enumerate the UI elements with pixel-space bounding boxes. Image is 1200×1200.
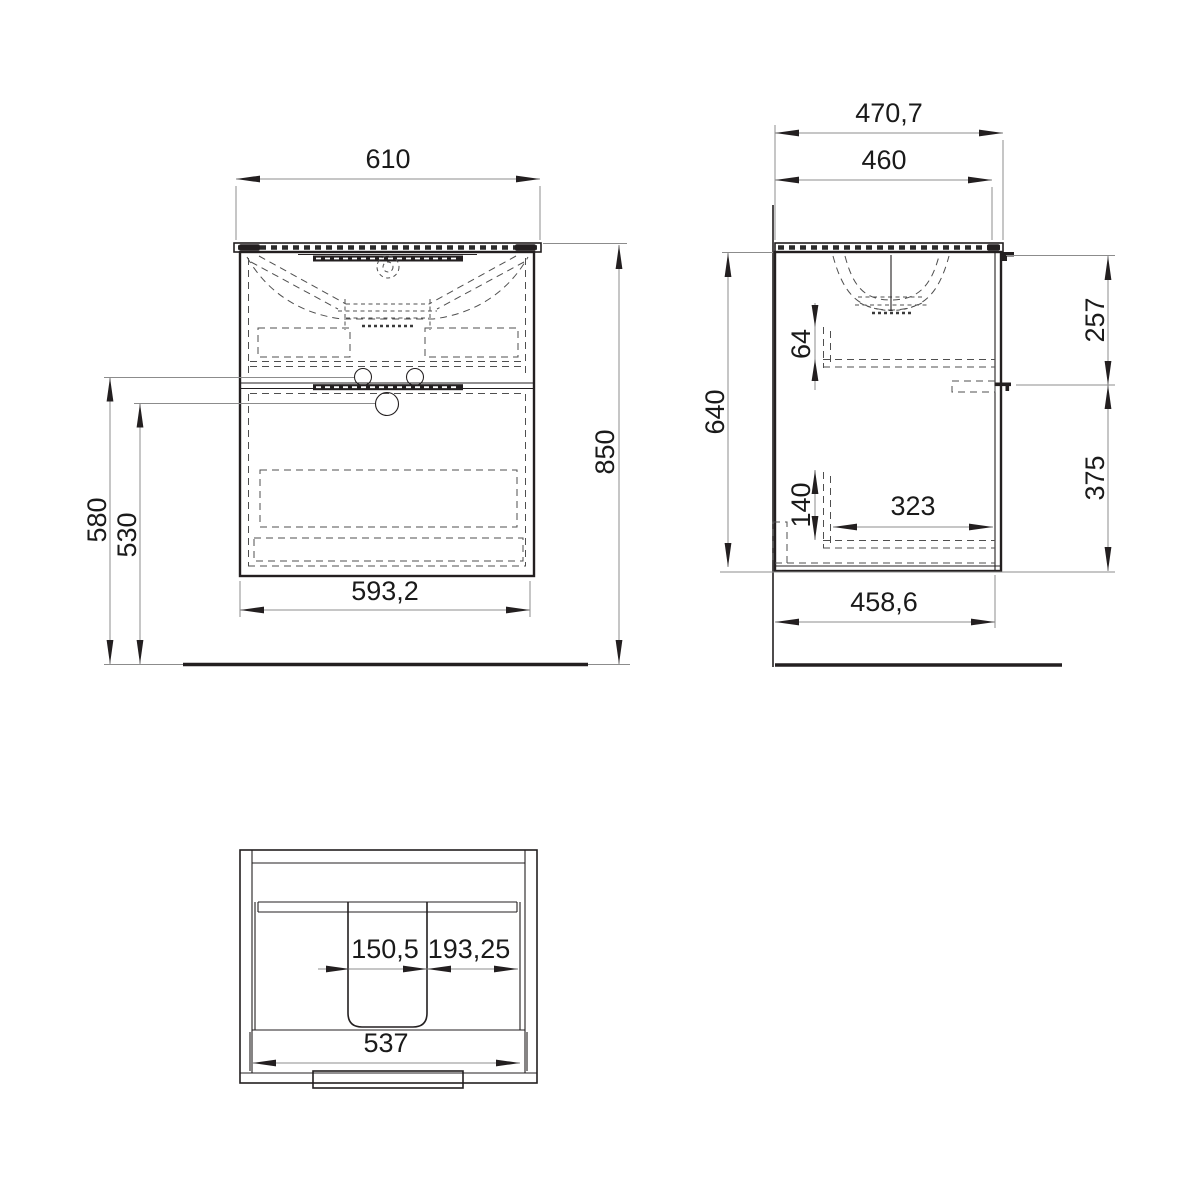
side-dim-bottom-depth: 458,6 (775, 575, 995, 628)
front-view: 610 (82, 144, 630, 665)
front-basin-hidden-lines (247, 256, 528, 330)
dim-label-593-2: 593,2 (351, 576, 419, 606)
side-upper-drawer-hidden (823, 327, 995, 392)
dim-label-640: 640 (700, 389, 730, 434)
side-top-hook (1001, 252, 1014, 261)
side-dim-lower-front: 375 (1080, 385, 1111, 571)
side-dim-carcass-height: 640 (700, 253, 1115, 573)
top-handle-tab (313, 1071, 463, 1088)
dim-label-537: 537 (363, 1028, 408, 1058)
side-dim-64: 64 (786, 303, 818, 390)
front-top-handle-strip (313, 256, 463, 262)
front-dim-bottom-width: 593,2 (240, 576, 530, 617)
dim-label-470-7: 470,7 (855, 98, 923, 128)
dim-label-375: 375 (1080, 455, 1110, 500)
dim-label-257: 257 (1080, 297, 1110, 342)
dim-label-580: 580 (82, 497, 112, 542)
dim-label-140: 140 (786, 482, 816, 527)
side-countertop (775, 243, 1003, 252)
dim-label-460: 460 (861, 145, 906, 175)
side-dim-top-depth: 460 (775, 145, 992, 240)
dim-label-193-25: 193,25 (428, 934, 511, 964)
front-dim-top-width: 610 (236, 144, 540, 240)
side-dim-inner-depth: 323 (833, 491, 993, 530)
dim-label-850: 850 (590, 429, 620, 474)
dim-label-150-5: 150,5 (351, 934, 419, 964)
dim-label-610: 610 (365, 144, 410, 174)
drawing-page: 610 (0, 0, 1200, 1200)
side-view: 470,7 460 (700, 98, 1115, 667)
drawing-canvas: 610 (0, 0, 1200, 1200)
side-handle-hook (995, 383, 1011, 392)
dim-label-64: 64 (786, 329, 816, 359)
front-siphon-hole (376, 393, 399, 416)
front-dim-overall-height: 850 (543, 244, 627, 665)
dim-label-458-6: 458,6 (850, 587, 918, 617)
top-interior (252, 902, 525, 1030)
front-drawer-divider (240, 383, 534, 394)
dim-label-323: 323 (890, 491, 935, 521)
side-basin-hidden-lines (833, 255, 949, 313)
top-view: 150,5 193,25 537 (240, 850, 537, 1088)
top-siphon-cutout (348, 902, 427, 1027)
top-dim-inner-width: 537 (252, 1028, 520, 1066)
front-dim-height-530: 530 (112, 404, 375, 665)
side-dim-140: 140 (786, 470, 818, 540)
side-dim-upper-front: 257 (1006, 256, 1115, 386)
dim-label-530: 530 (112, 512, 142, 557)
front-lower-drawer-hidden (248, 394, 526, 566)
